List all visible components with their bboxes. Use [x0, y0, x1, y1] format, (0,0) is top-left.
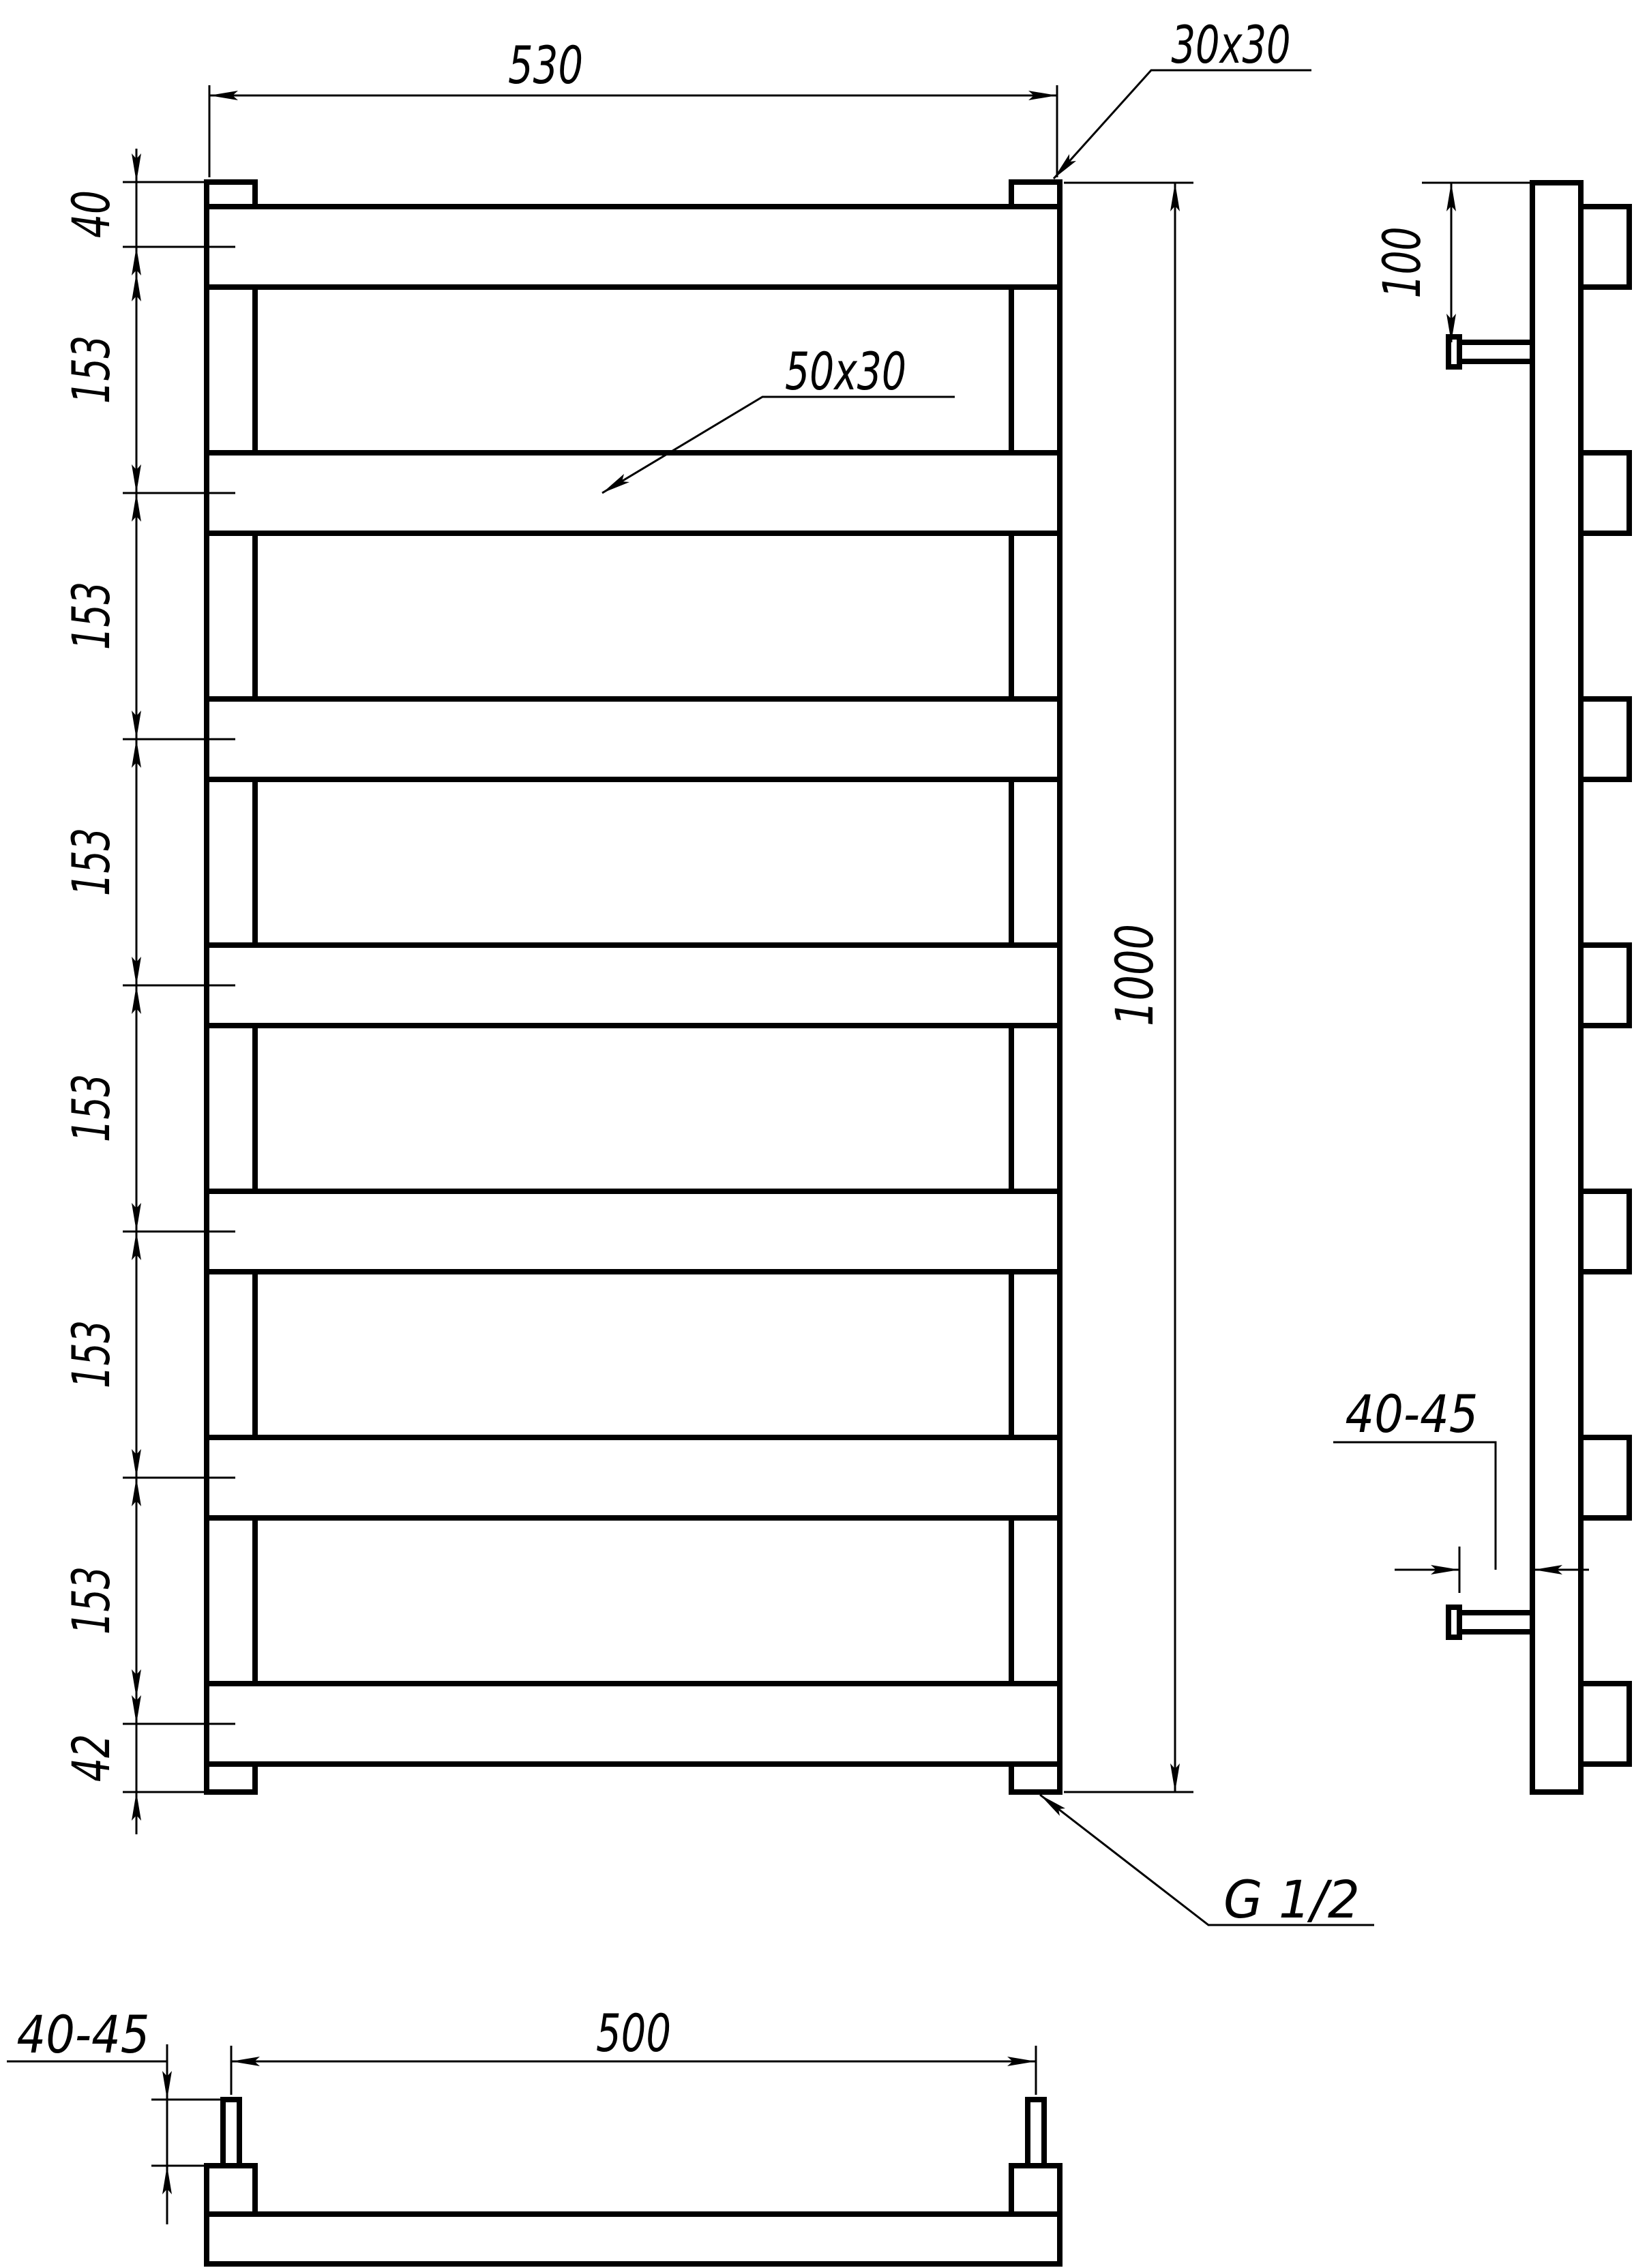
chain-label-40: 40: [61, 190, 121, 238]
side-rung-4: [1581, 945, 1629, 1026]
post-profile-label: 30x30: [1172, 14, 1291, 75]
rung-5: [207, 1191, 1060, 1272]
chain-label-153-2: 153: [61, 582, 121, 650]
left-post-section: [207, 2166, 255, 2214]
rung-3: [207, 699, 1060, 779]
side-rung-7: [1581, 1684, 1629, 1764]
side-view: 100 40-45: [1333, 183, 1629, 1792]
rung-7: [207, 1684, 1060, 1764]
side-rung-5: [1581, 1191, 1629, 1272]
chain-label-153-6: 153: [61, 1566, 121, 1635]
dim-bracket-spacing-500: 500: [231, 2003, 1036, 2095]
front-view: 530 1000: [61, 14, 1374, 1930]
chain-label-153-4: 153: [61, 1074, 121, 1142]
leader-arrowhead: [1040, 1795, 1065, 1816]
dim-width-530: 530: [209, 35, 1057, 177]
side-rung-1: [1581, 207, 1629, 287]
side-rung-3: [1581, 699, 1629, 779]
wall-offset-label-bottom: 40-45: [17, 2004, 150, 2065]
dim-width-label: 530: [508, 35, 583, 95]
wall-offset-label-side: 40-45: [1346, 1384, 1479, 1444]
chain-label-153-3: 153: [61, 828, 121, 896]
side-rung-2: [1581, 453, 1629, 533]
bottom-bracket-arm: [1459, 1613, 1534, 1632]
chain-label-42: 42: [61, 1734, 121, 1782]
drawing-sheet: 530 1000: [0, 0, 1634, 2268]
rung-profile-label: 50x30: [785, 341, 906, 402]
chain-label-153-5: 153: [61, 1320, 121, 1388]
rung-4: [207, 945, 1060, 1026]
side-post: [1532, 183, 1581, 1792]
right-post-section: [1011, 2166, 1060, 2214]
rung-2: [207, 453, 1060, 533]
dim-bracket-offset-100: 100: [1371, 183, 1532, 342]
top-bracket-arm: [1459, 342, 1534, 361]
callout-thread: G 1/2: [1040, 1795, 1374, 1930]
towel-rail-drawing: 530 1000: [0, 0, 1634, 2268]
side-rung-6: [1581, 1437, 1629, 1518]
bottom-rail: [207, 2214, 1060, 2264]
left-bracket-pin: [223, 2100, 239, 2166]
dim-height-1000: 1000: [1064, 183, 1193, 1792]
rung-6: [207, 1437, 1060, 1518]
dim-wall-offset-bottom: 40-45: [7, 2004, 225, 2224]
rung-1: [207, 207, 1060, 287]
thread-label: G 1/2: [1223, 1869, 1360, 1930]
bottom-view: 500 40-45: [7, 2003, 1060, 2264]
dim-height-label: 1000: [1104, 924, 1165, 1026]
bracket-offset-label: 100: [1371, 227, 1432, 299]
right-bracket-pin: [1028, 2100, 1044, 2166]
callout-post-profile: 30x30: [1054, 14, 1311, 179]
bracket-spacing-label: 500: [596, 2003, 671, 2063]
chain-label-153-1: 153: [61, 335, 121, 404]
